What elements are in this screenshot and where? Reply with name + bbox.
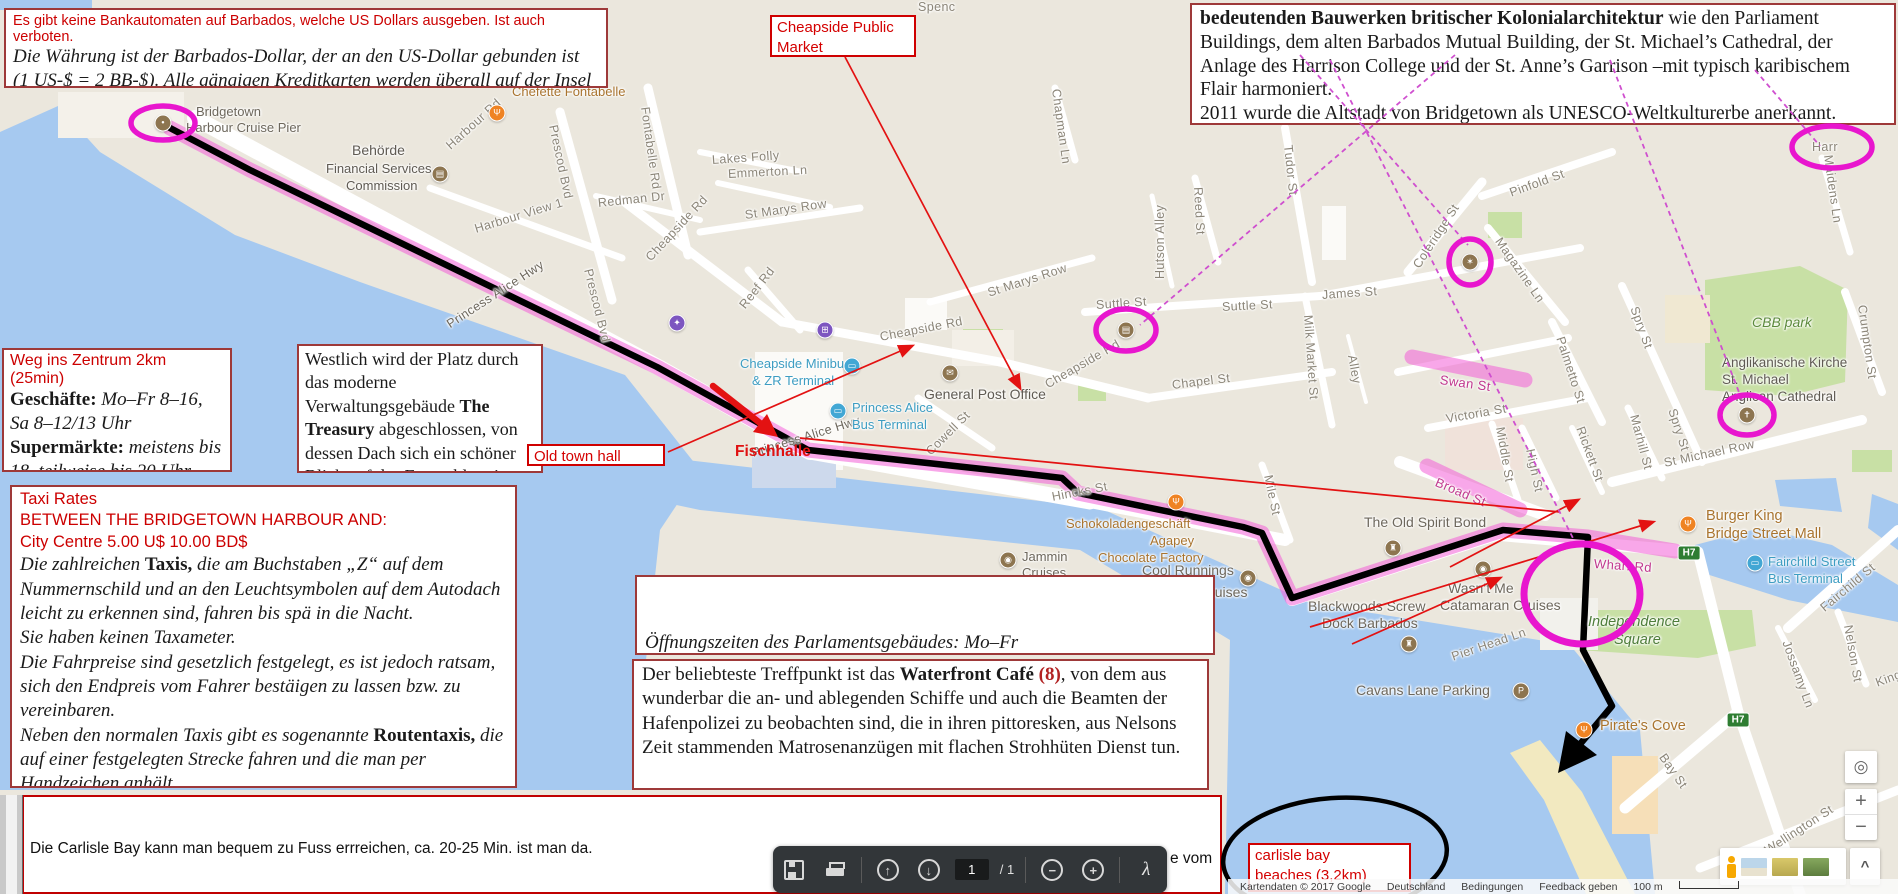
carlisle-line4-fragment: e vom xyxy=(1170,850,1212,868)
unesco-bold: bedeutenden Bauwerken britischer Kolonia… xyxy=(1200,8,1664,29)
fischhalle-label: Fischhalle xyxy=(735,443,811,461)
atm-note-body: Die Währung ist der Barbados-Dollar, der… xyxy=(13,45,599,88)
atm-note-headline: Es gibt keine Bankautomaten auf Barbados… xyxy=(13,13,599,45)
taxi-rates-box: Taxi Rates BETWEEN THE BRIDGETOWN HARBOU… xyxy=(10,485,517,788)
waterfront-cafe-box: Der beliebteste Treffpunkt ist das Water… xyxy=(632,659,1209,790)
scale-bar xyxy=(1679,881,1739,889)
waterfront-number: (8) xyxy=(1039,664,1061,685)
pegman-icon[interactable] xyxy=(1726,856,1736,878)
weg-zentrum-box: Weg ins Zentrum 2km (25min) Geschäfte: M… xyxy=(2,348,232,472)
map-attribution: Kartendaten © 2017 Google Deutschland Be… xyxy=(1228,879,1898,894)
arrow-down-icon: ↓ xyxy=(918,859,940,881)
plus-icon: + xyxy=(1082,859,1104,881)
taxi-p4-bold: Routentaxis, xyxy=(373,725,475,746)
open-in-acrobat-button[interactable]: λ xyxy=(1131,855,1161,885)
print-icon xyxy=(826,862,844,878)
save-button[interactable] xyxy=(779,855,809,885)
route-badge-h7: H7 xyxy=(1678,546,1701,561)
imagery-thumbnail[interactable] xyxy=(1772,858,1798,876)
taxi-h3: City Centre 5.00 U$ 10.00 BD$ xyxy=(20,532,507,553)
arrow-up-icon: ↑ xyxy=(877,859,899,881)
taxi-p4: Neben den normalen Taxis gibt es sogenan… xyxy=(20,725,373,746)
pdf-toolbar: ↑ ↓ 1 / 1 − + λ xyxy=(773,846,1167,893)
map-zoom-out-button[interactable]: − xyxy=(1845,815,1877,840)
parliament-hours-box: Öffnungszeiten des Parlamentsgebäudes: M… xyxy=(635,575,1215,655)
page-count-label: / 1 xyxy=(1000,862,1014,877)
unesco-note-box: bedeutenden Bauwerken britischer Kolonia… xyxy=(1190,3,1896,125)
treasury-note-box: Westlich wird der Platz durch das modern… xyxy=(297,344,543,473)
taxi-p1: Die zahlreichen xyxy=(20,554,145,575)
parliament-line1: Öffnungszeiten des Parlamentsgebäudes: M… xyxy=(645,630,1205,655)
minus-icon: − xyxy=(1041,859,1063,881)
zoom-in-button[interactable]: + xyxy=(1078,855,1108,885)
my-location-button[interactable]: ◎ xyxy=(1845,751,1877,783)
geschaefte-label: Geschäfte: xyxy=(10,389,97,410)
waterfront-pre: Der beliebteste Treffpunkt ist das xyxy=(642,664,900,685)
print-button[interactable] xyxy=(820,855,850,885)
terms-link[interactable]: Bedingungen xyxy=(1461,881,1523,893)
taxi-p2: Sie haben keinen Taxameter. xyxy=(20,626,507,650)
page-down-button[interactable]: ↓ xyxy=(914,855,944,885)
attribution-copyright: Kartendaten © 2017 Google xyxy=(1240,881,1371,893)
scale-label: 100 m xyxy=(1633,881,1662,893)
map-zoom-in-button[interactable]: + xyxy=(1845,789,1877,814)
screenshot-root: Harbour RdHarbour View 1Prescod BvdPresc… xyxy=(0,0,1898,894)
imagery-thumbnail[interactable] xyxy=(1803,858,1829,876)
old-town-hall-text: Old town hall xyxy=(534,448,621,465)
route-badge-h7: H7 xyxy=(1727,713,1750,728)
cheapside-market-text: Cheapside Public Market xyxy=(777,19,894,56)
cheapside-market-label: Cheapside Public Market xyxy=(770,15,916,57)
save-icon xyxy=(784,860,804,880)
page-number-input[interactable]: 1 xyxy=(955,859,989,880)
supermaerkte-label: Supermärkte: xyxy=(10,437,124,458)
taxi-p3: Die Fahrpreise sind gesetzlich festgeleg… xyxy=(20,651,507,724)
waterfront-bold: Waterfront Café xyxy=(900,664,1039,685)
atm-note-box: Es gibt keine Bankautomaten auf Barbados… xyxy=(4,8,608,88)
page-edge xyxy=(0,795,23,894)
taxi-p1-bold: Taxis, xyxy=(145,554,192,575)
taxi-h2: BETWEEN THE BRIDGETOWN HARBOUR AND: xyxy=(20,510,507,531)
attribution-region: Deutschland xyxy=(1387,881,1445,893)
carlisle-label-line1: carlisle bay xyxy=(1255,846,1404,866)
imagery-thumbnail[interactable] xyxy=(1741,858,1767,876)
taxi-h1: Taxi Rates xyxy=(20,489,507,510)
map-zoom-control: + − xyxy=(1845,789,1877,840)
feedback-link[interactable]: Feedback geben xyxy=(1539,881,1617,893)
unesco-line2: 2011 wurde die Altstadt von Bridgetown a… xyxy=(1200,102,1886,125)
weg-headline: Weg ins Zentrum 2km (25min) xyxy=(10,352,224,388)
page-up-button[interactable]: ↑ xyxy=(873,855,903,885)
zoom-out-button[interactable]: − xyxy=(1037,855,1067,885)
old-town-hall-label: Old town hall xyxy=(527,444,665,466)
